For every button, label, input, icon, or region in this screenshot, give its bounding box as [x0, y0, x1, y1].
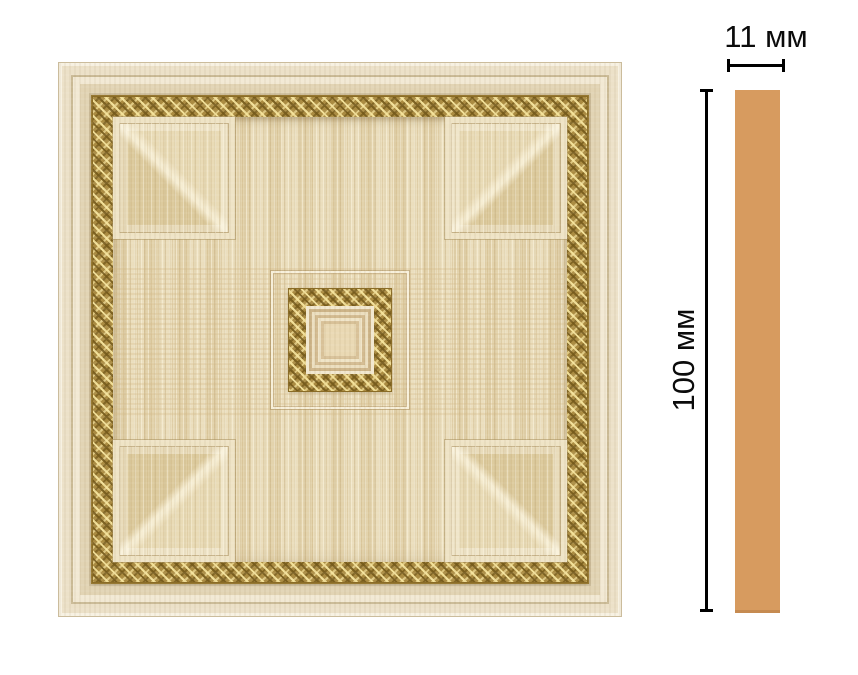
wood-grain-field: [113, 117, 567, 562]
corner-ornament-top-left: [113, 117, 235, 239]
profile-cross-section: [735, 90, 780, 613]
height-dimension-tick-bottom: [700, 609, 713, 612]
width-dimension-tick-right: [782, 59, 785, 72]
gold-ornament-border: [92, 96, 588, 583]
height-dimension-tick-top: [700, 89, 713, 92]
width-dimension-label: 11 мм: [718, 20, 814, 54]
molding-panel-image: [58, 62, 622, 617]
height-dimension-line: [705, 89, 708, 612]
product-figure: 11 мм 100 мм: [0, 0, 858, 675]
corner-ornament-top-right: [445, 117, 567, 239]
width-dimension-line: [727, 64, 785, 67]
width-dimension-tick-left: [727, 59, 730, 72]
height-dimension-label: 100 мм: [666, 309, 702, 412]
corner-ornament-bottom-right: [445, 440, 567, 562]
corner-ornament-bottom-left: [113, 440, 235, 562]
medallion-core: [306, 306, 374, 374]
center-medallion: [289, 289, 391, 391]
